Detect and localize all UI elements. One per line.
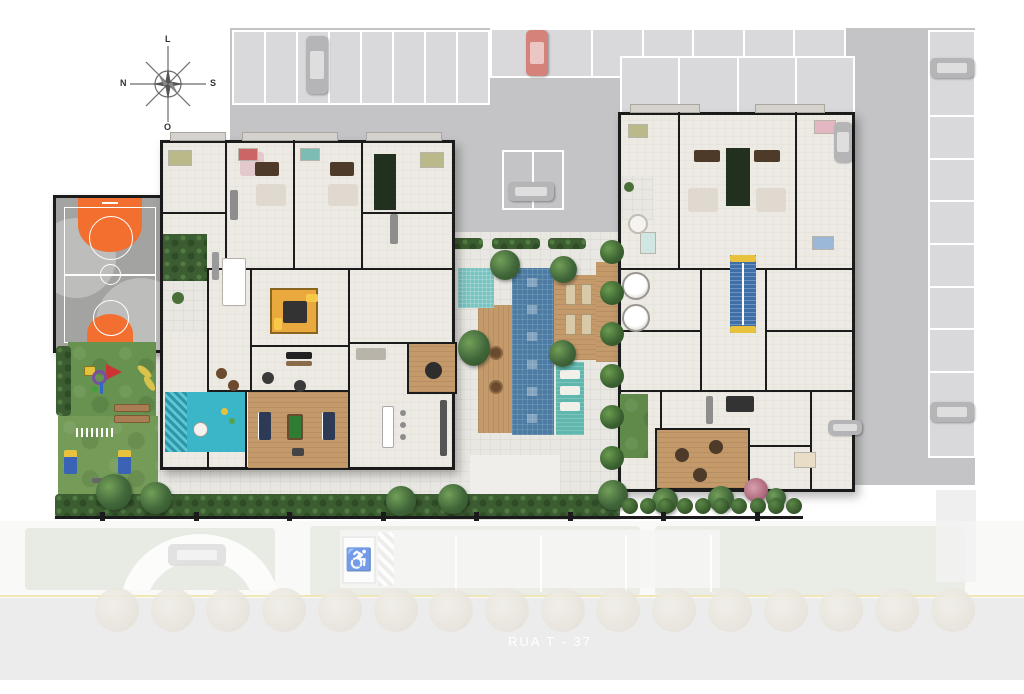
interior-wall <box>245 390 247 470</box>
bed <box>238 148 258 161</box>
play-dot <box>92 386 98 392</box>
bush <box>786 498 802 514</box>
interior-wall <box>810 390 812 492</box>
street-tree <box>262 588 306 632</box>
stool <box>400 422 406 428</box>
car-red <box>526 30 548 76</box>
in-pool-lounger <box>560 402 580 411</box>
ball-pit <box>283 301 307 323</box>
compass-label-south: S <box>210 78 216 88</box>
court-free-throw-arc <box>93 300 129 336</box>
interior-wall <box>361 212 455 214</box>
interior-wall <box>765 268 767 390</box>
street-tree <box>764 588 808 632</box>
pergola-trellis <box>76 428 116 437</box>
car <box>930 402 974 422</box>
party-table <box>222 258 246 306</box>
street-tree <box>541 588 585 632</box>
garden-plant <box>624 182 634 192</box>
pool-table <box>287 414 303 440</box>
kitchen-counter <box>390 214 398 244</box>
compass-label-east: L <box>165 34 171 44</box>
street-tree <box>95 588 139 632</box>
bed <box>812 236 834 250</box>
bed <box>794 452 816 468</box>
stall-line-faded <box>540 535 542 592</box>
street-tree-row <box>95 588 975 634</box>
table-tennis <box>322 412 335 440</box>
elevator-core <box>374 154 396 210</box>
planter-hedge <box>492 238 540 249</box>
tv-panel <box>286 352 312 359</box>
game-room-floor <box>248 392 348 468</box>
mosaic-tile <box>527 360 537 369</box>
parking-row-a <box>232 30 490 105</box>
kids-pool-room <box>165 392 245 452</box>
parking-stall <box>458 32 488 103</box>
pouf <box>262 372 274 384</box>
parking-stall <box>543 30 594 76</box>
bistro-table <box>489 346 503 360</box>
patio-table <box>628 214 648 234</box>
parking-stall <box>426 32 458 103</box>
backboard-line <box>102 202 118 204</box>
stall-divider-line <box>532 150 534 210</box>
street-label: RUA T - 37 <box>440 634 660 649</box>
pocket-patio <box>163 281 207 331</box>
foosball-table <box>292 448 304 456</box>
balcony <box>366 132 442 141</box>
parking-stall <box>930 117 974 160</box>
parking-stall <box>930 202 974 245</box>
bush <box>768 498 784 514</box>
stair-landing <box>730 326 756 333</box>
sun-lounger <box>118 450 131 474</box>
interior-wall <box>348 342 408 344</box>
interior-wall <box>348 268 350 470</box>
parking-stall <box>930 160 974 203</box>
sofa <box>356 348 386 360</box>
terrace-table <box>709 440 723 454</box>
bed <box>420 152 444 168</box>
umbrella-table <box>425 362 442 379</box>
living-rug <box>256 184 286 206</box>
basketball-court <box>53 195 167 353</box>
car <box>508 182 554 201</box>
sun-lounger <box>581 284 592 305</box>
tree <box>438 484 468 514</box>
stall-line-faded <box>455 535 457 592</box>
table-tennis <box>258 412 271 440</box>
bed <box>814 120 836 134</box>
counter <box>440 400 447 456</box>
tree <box>458 330 490 366</box>
compass: L S O N <box>120 38 216 130</box>
stool <box>400 410 406 416</box>
palm-tree <box>600 240 624 264</box>
street-tree <box>206 588 250 632</box>
stair-rail <box>742 263 744 325</box>
play-pole <box>100 382 103 394</box>
compass-rose-icon <box>120 38 216 130</box>
street-tree <box>151 588 195 632</box>
tree <box>549 340 576 367</box>
interior-wall <box>361 140 363 268</box>
kids-pool <box>458 268 494 308</box>
compass-label-north: N <box>120 78 127 88</box>
playground-structure <box>84 360 124 394</box>
utility-pad <box>936 490 976 582</box>
kitchen-island <box>382 406 394 448</box>
tree <box>140 482 172 514</box>
bed <box>300 148 320 161</box>
sun-lounger <box>64 450 77 474</box>
kitchen-counter <box>706 396 713 424</box>
balcony <box>755 104 825 113</box>
dining-table <box>694 150 720 162</box>
mosaic-tile <box>527 278 537 287</box>
interior-wall <box>700 268 702 390</box>
palm-tree <box>600 322 624 346</box>
street-tree <box>374 588 418 632</box>
in-pool-lounger <box>560 370 580 379</box>
wet-table <box>193 422 208 437</box>
stall-line-faded <box>710 535 712 592</box>
sidewalk-pad <box>340 530 720 588</box>
mosaic-band <box>165 392 187 452</box>
mosaic-tile <box>527 414 537 423</box>
palm-tree <box>600 281 624 305</box>
bed <box>168 150 192 166</box>
interior-wall <box>678 112 680 270</box>
planter-hedge <box>548 238 586 249</box>
accessible-parking: ♿ <box>342 536 376 584</box>
page-bottom-fade <box>0 680 1024 694</box>
parking-stall <box>930 330 974 373</box>
spa-tub <box>622 272 650 300</box>
stool <box>400 434 406 440</box>
street-tree <box>708 588 752 632</box>
interior-wall <box>250 268 252 390</box>
kitchen-counter <box>230 190 238 220</box>
car-faded <box>168 544 226 566</box>
parking-stall <box>930 75 974 118</box>
palm-tree <box>600 405 624 429</box>
street-tree <box>819 588 863 632</box>
car <box>834 122 852 162</box>
floor-plan: ♿ RUA T - 37 L <box>0 0 1024 694</box>
balcony <box>170 132 226 141</box>
stall-line-faded <box>625 535 627 592</box>
pool-toy <box>229 418 235 424</box>
pocket-garden <box>163 234 207 281</box>
interior-wall <box>250 345 350 347</box>
mosaic-tile <box>527 387 537 396</box>
lap-pool <box>512 268 554 435</box>
gourmet-kitchen <box>352 394 452 466</box>
parking-column-right <box>928 30 976 458</box>
mosaic-tile <box>527 305 537 314</box>
dining-table <box>330 162 354 176</box>
play-arrow <box>274 318 282 330</box>
parking-stall <box>330 32 362 103</box>
street-tree <box>429 588 473 632</box>
street-tree <box>318 588 362 632</box>
tree <box>490 250 520 280</box>
bistro-table <box>216 368 227 379</box>
parking-stall <box>362 32 394 103</box>
interior-wall <box>795 112 797 270</box>
bench <box>114 415 150 423</box>
interior-wall <box>160 212 225 214</box>
interior-wall <box>293 140 295 268</box>
dining-table <box>255 162 279 176</box>
pool-mosaic <box>527 278 539 423</box>
court-center-circle <box>100 264 121 285</box>
garden-plant <box>172 292 184 304</box>
terrace-deck <box>655 428 750 490</box>
street-tree <box>652 588 696 632</box>
street-tree <box>485 588 529 632</box>
mosaic-tile <box>527 332 537 341</box>
palm-tree <box>600 364 624 388</box>
bench <box>114 404 150 412</box>
pouf <box>294 380 306 392</box>
tv-console <box>286 361 312 366</box>
car <box>306 36 328 94</box>
living-rug <box>756 188 786 212</box>
in-pool-lounger <box>560 386 580 395</box>
court-free-throw-arc <box>89 216 133 260</box>
interior-wall <box>618 390 855 392</box>
balcony <box>242 132 338 141</box>
parking-stall <box>266 32 298 103</box>
parking-stall <box>930 288 974 331</box>
sun-lounger <box>581 314 592 335</box>
compass-label-west: O <box>164 122 171 132</box>
wet-deck <box>556 362 584 435</box>
side-hedge <box>56 346 71 416</box>
sun-lounger <box>565 284 576 305</box>
bistro-table <box>489 380 503 394</box>
terrace-table <box>675 448 689 462</box>
wheelchair-icon: ♿ <box>345 547 372 573</box>
car <box>828 420 862 435</box>
pool-toy <box>221 408 228 415</box>
hatched-strip <box>378 532 394 586</box>
pool-side-deck <box>478 305 512 433</box>
palm-row <box>600 240 626 470</box>
play-slide <box>106 364 122 380</box>
dining-table <box>754 150 780 162</box>
interior-wall <box>225 140 227 268</box>
stair-landing <box>730 255 756 262</box>
sideboard <box>212 252 219 280</box>
street-tree <box>596 588 640 632</box>
spa-tub <box>622 304 650 332</box>
balcony <box>630 104 700 113</box>
street-tree <box>875 588 919 632</box>
living-rug <box>328 184 358 206</box>
bistro-table <box>228 380 239 391</box>
interior-wall <box>765 330 855 332</box>
kids-playroom <box>270 288 318 334</box>
palm-tree <box>600 446 624 470</box>
parking-stall <box>394 32 426 103</box>
parking-stall <box>930 245 974 288</box>
car <box>930 58 974 78</box>
terrace-table <box>693 468 707 482</box>
street-tree <box>931 588 975 632</box>
sun-lounger <box>565 314 576 335</box>
stair-core <box>730 255 756 333</box>
tree <box>550 256 577 283</box>
living-rug <box>688 188 718 212</box>
elevator-core <box>726 148 750 206</box>
range-counter <box>726 396 754 412</box>
bed <box>640 232 656 254</box>
bed <box>628 124 648 138</box>
parking-stall <box>234 32 266 103</box>
tree <box>96 474 132 510</box>
play-arrow <box>306 294 318 302</box>
gourmet-pergola <box>407 342 457 394</box>
